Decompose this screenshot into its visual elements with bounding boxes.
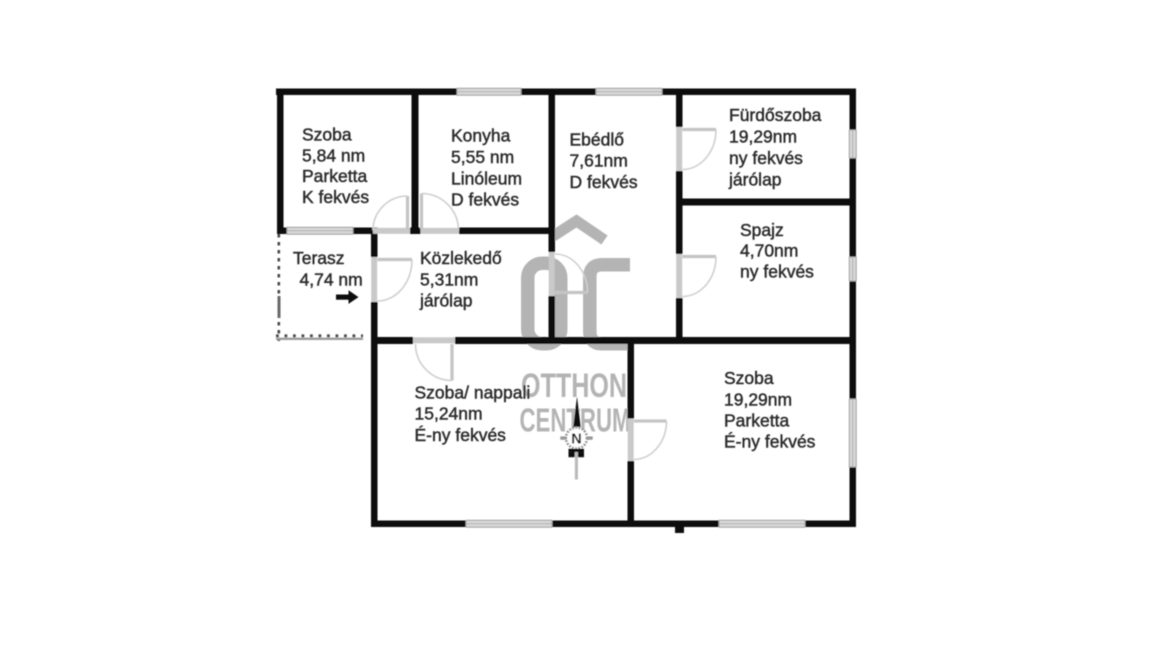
svg-text:Szoba: Szoba [302,125,352,145]
svg-text:7,61nm: 7,61nm [570,151,628,171]
svg-text:É-ny fekvés: É-ny fekvés [415,425,507,445]
svg-text:4,70nm: 4,70nm [740,241,798,261]
svg-text:Ebédlő: Ebédlő [570,130,625,150]
svg-text:15,24nm: 15,24nm [415,404,483,424]
svg-text:4,74 nm: 4,74 nm [300,270,363,290]
svg-text:Parketta: Parketta [302,166,367,186]
svg-text:ny fekvés: ny fekvés [740,262,814,282]
svg-text:19,29nm: 19,29nm [724,390,792,410]
svg-text:D fekvés: D fekvés [570,172,638,192]
svg-text:19,29nm: 19,29nm [729,127,797,147]
svg-text:Szoba: Szoba [724,368,774,388]
svg-text:OTTHON: OTTHON [521,367,627,405]
svg-text:É-ny fekvés: É-ny fekvés [724,432,816,452]
svg-text:K fekvés: K fekvés [302,187,369,207]
svg-text:ny fekvés: ny fekvés [729,148,803,168]
svg-text:5,31nm: 5,31nm [420,270,478,290]
svg-text:D fekvés: D fekvés [451,190,519,210]
svg-text:Linóleum: Linóleum [451,169,522,189]
svg-text:Szoba/ nappali: Szoba/ nappali [415,383,531,403]
svg-text:Közlekedő: Közlekedő [420,248,502,268]
svg-text:5,55 nm: 5,55 nm [451,147,514,167]
svg-text:Fürdőszoba: Fürdőszoba [729,105,822,125]
svg-text:5,84 nm: 5,84 nm [302,146,365,166]
svg-text:járólap: járólap [419,291,473,311]
svg-text:N: N [571,432,581,448]
svg-text:járólap: járólap [728,170,782,190]
svg-text:Terasz: Terasz [293,248,345,268]
svg-text:Parketta: Parketta [724,411,789,431]
svg-text:Konyha: Konyha [451,126,511,146]
svg-text:Spajz: Spajz [740,220,784,240]
